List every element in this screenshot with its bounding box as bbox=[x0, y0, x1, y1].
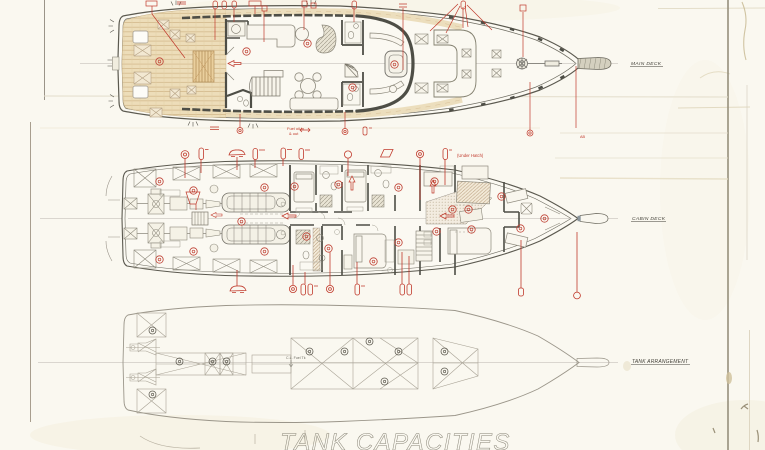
svg-text:C.L. Fuel Tk: C.L. Fuel Tk bbox=[286, 356, 306, 360]
svg-text:CABIN DECK: CABIN DECK bbox=[632, 216, 666, 222]
svg-text:(Under Hatch): (Under Hatch) bbox=[457, 153, 484, 158]
svg-text:AB: AB bbox=[580, 135, 586, 139]
svg-text:TANK CAPACITIES: TANK CAPACITIES bbox=[280, 429, 511, 450]
svg-text:MAIN DECK: MAIN DECK bbox=[631, 61, 662, 67]
svg-text:& out: & out bbox=[289, 131, 299, 136]
svg-text:TANK ARRANGEMENT: TANK ARRANGEMENT bbox=[632, 359, 689, 365]
